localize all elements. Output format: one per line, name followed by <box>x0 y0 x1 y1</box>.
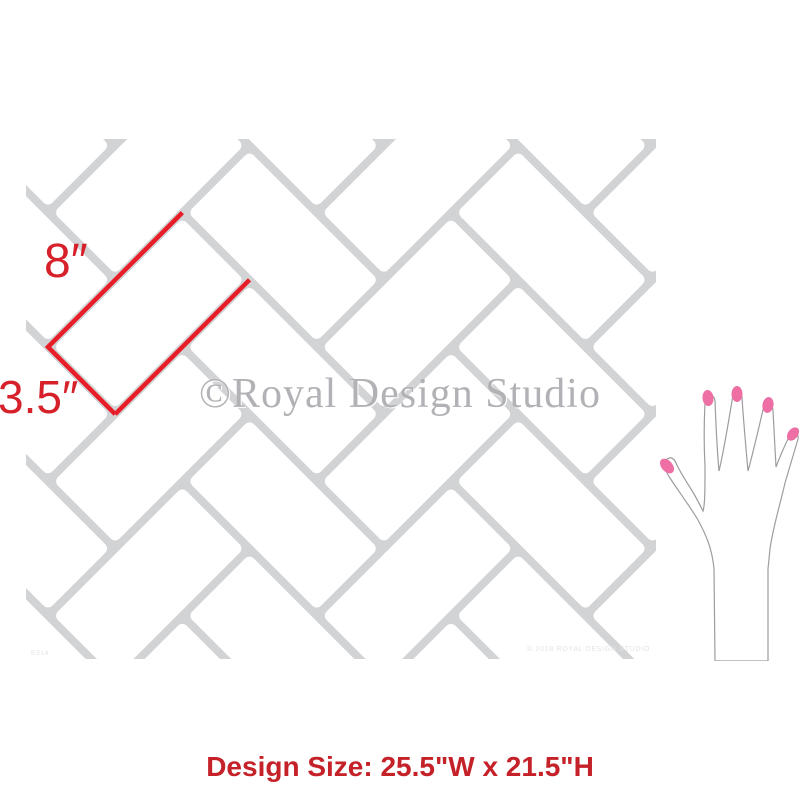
dimension-label-3-5in: 3.5″ <box>0 374 78 420</box>
design-size-caption: Design Size: 25.5"W x 21.5"H <box>0 751 800 783</box>
middle-nail <box>732 386 743 402</box>
stencil-sku-text: E314 <box>31 650 49 657</box>
product-image: ©Royal Design Studio 8″ 3.5″ © 2018 ROYA… <box>0 0 800 800</box>
hand-scale-illustration <box>653 377 800 661</box>
stencil-copyright-text: © 2018 ROYAL DESIGN STUDIO <box>26 646 650 653</box>
dimension-label-8in: 8″ <box>44 238 88 286</box>
hand-outline <box>664 392 798 661</box>
